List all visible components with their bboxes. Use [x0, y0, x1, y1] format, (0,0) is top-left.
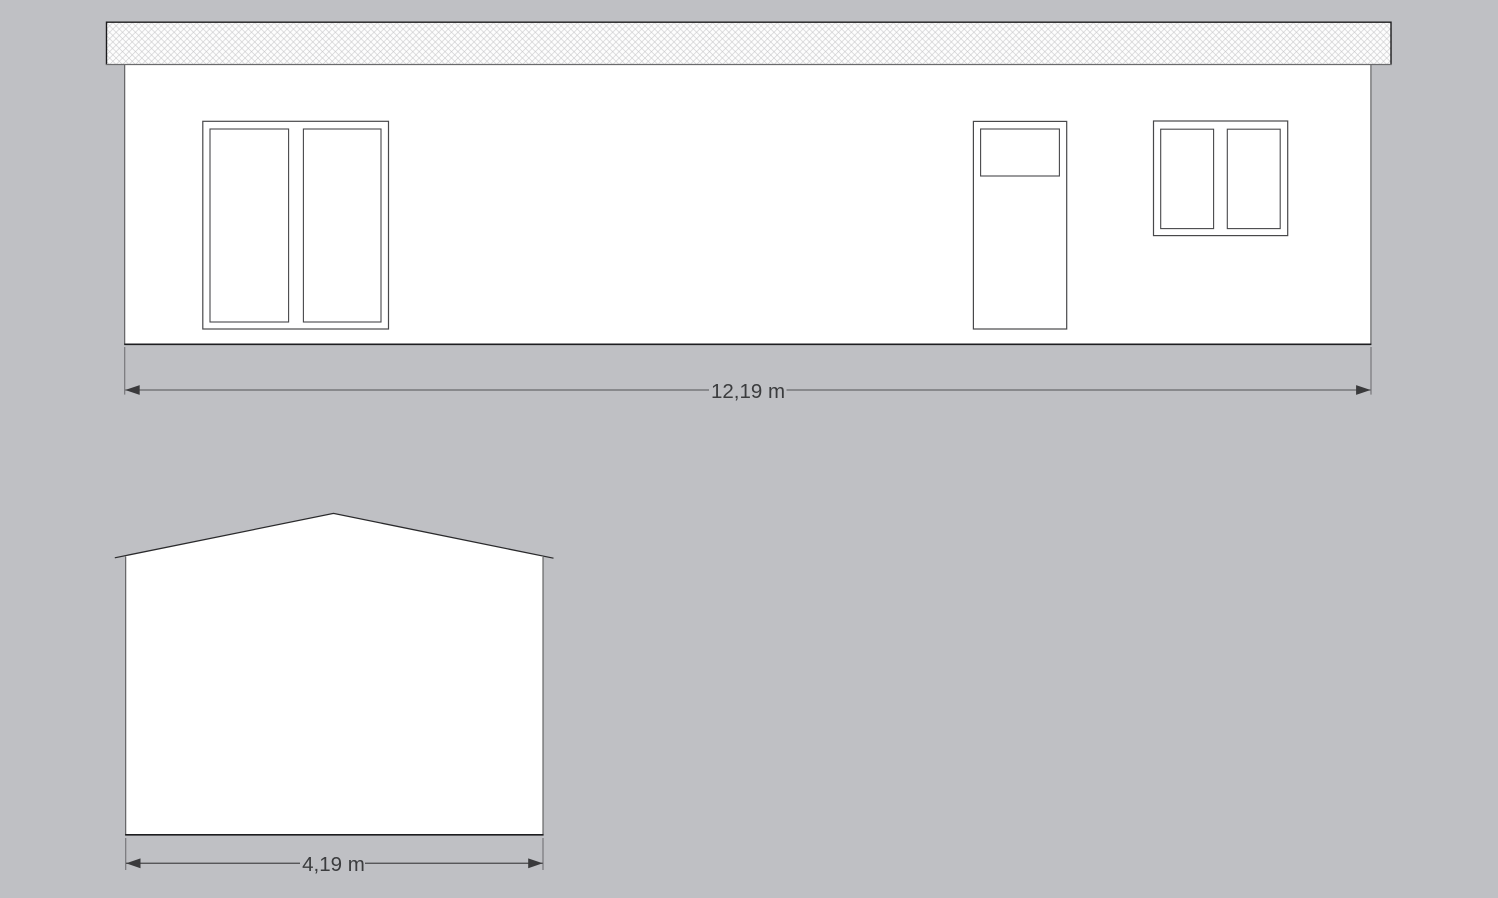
svg-text:12,19 m: 12,19 m: [711, 380, 785, 403]
svg-text:4,19 m: 4,19 m: [302, 853, 365, 876]
